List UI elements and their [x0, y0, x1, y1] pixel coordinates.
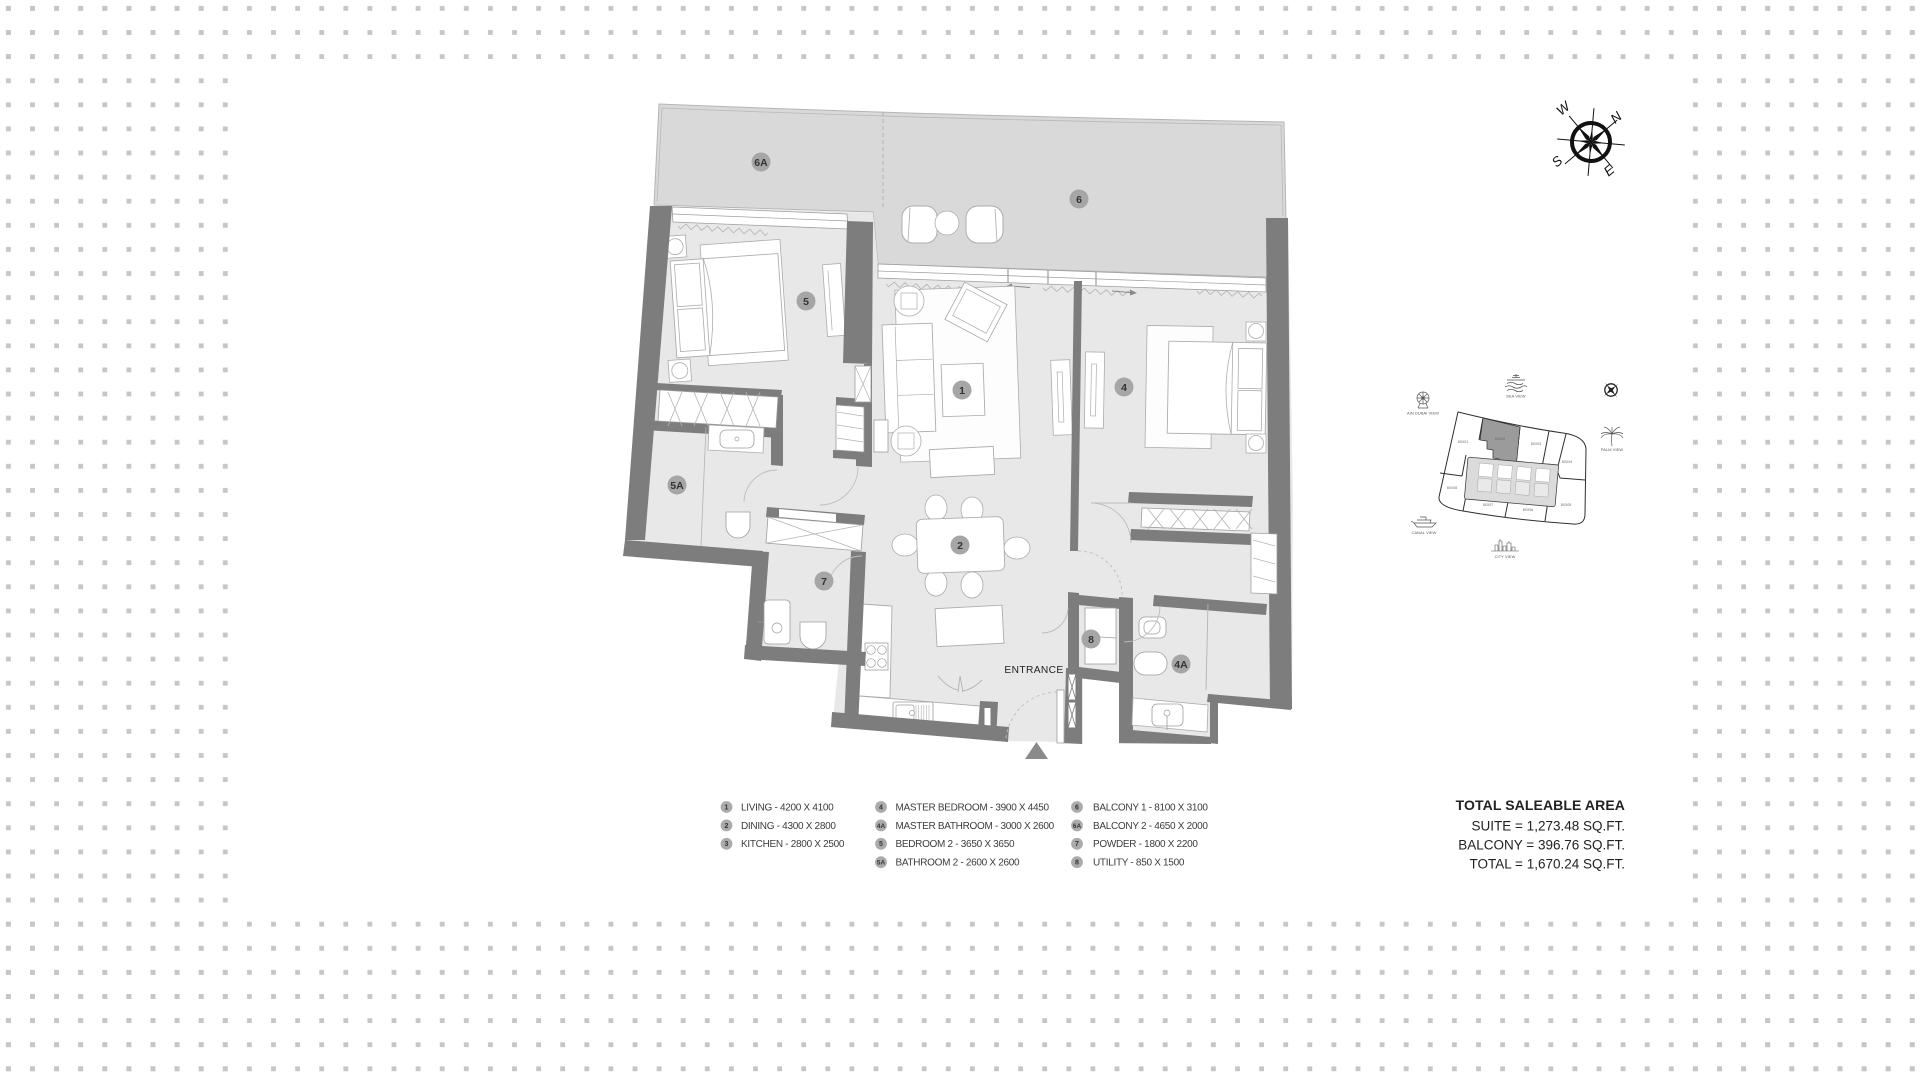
- svg-text:6: 6: [1076, 194, 1082, 206]
- svg-text:CANAL VIEW: CANAL VIEW: [1412, 530, 1437, 535]
- svg-text:PALM VIEW: PALM VIEW: [1601, 447, 1623, 452]
- svg-text:4: 4: [1121, 382, 1127, 394]
- svg-text:MASTER BATHROOM - 3000 X 2600: MASTER BATHROOM - 3000 X 2600: [896, 821, 1055, 832]
- svg-text:8: 8: [1075, 860, 1079, 867]
- svg-text:7: 7: [1075, 841, 1079, 848]
- svg-text:MASTER BEDROOM - 3900 X 4450: MASTER BEDROOM - 3900 X 4450: [896, 802, 1050, 813]
- svg-text:6: 6: [1075, 804, 1079, 811]
- svg-text:8XX02: 8XX02: [1495, 437, 1505, 441]
- svg-text:BEDROOM 2 - 3650 X 3650: BEDROOM 2 - 3650 X 3650: [896, 839, 1015, 850]
- svg-text:TOTAL = 1,670.24 SQ.FT.: TOTAL = 1,670.24 SQ.FT.: [1470, 857, 1625, 872]
- svg-text:LIVING - 4200 X 4100: LIVING - 4200 X 4100: [741, 802, 834, 813]
- svg-text:AIN DUBAI VIEW: AIN DUBAI VIEW: [1407, 411, 1439, 416]
- svg-text:8XX06: 8XX06: [1523, 508, 1533, 512]
- svg-text:5A: 5A: [877, 860, 886, 867]
- svg-text:6A: 6A: [754, 157, 768, 169]
- svg-text:POWDER - 1800 X 2200: POWDER - 1800 X 2200: [1093, 839, 1198, 850]
- svg-text:8XX08: 8XX08: [1447, 486, 1457, 490]
- svg-text:5: 5: [803, 296, 809, 308]
- svg-text:SUITE = 1,273.48 SQ.FT.: SUITE = 1,273.48 SQ.FT.: [1472, 819, 1625, 834]
- svg-text:4A: 4A: [877, 823, 886, 830]
- svg-text:UTILITY - 850 X 1500: UTILITY - 850 X 1500: [1093, 858, 1185, 869]
- svg-text:1: 1: [959, 385, 965, 397]
- svg-text:BATHROOM 2 - 2600 X 2600: BATHROOM 2 - 2600 X 2600: [896, 858, 1021, 869]
- svg-text:5A: 5A: [670, 480, 684, 492]
- svg-text:1: 1: [725, 804, 729, 811]
- svg-text:4A: 4A: [1174, 659, 1188, 671]
- svg-text:SEA VIEW: SEA VIEW: [1506, 394, 1526, 399]
- svg-text:8: 8: [1088, 634, 1094, 646]
- svg-text:8XX01: 8XX01: [1458, 440, 1468, 444]
- svg-text:7: 7: [821, 576, 827, 588]
- svg-text:5: 5: [879, 841, 883, 848]
- svg-text:BALCONY 2 - 4650 X 2000: BALCONY 2 - 4650 X 2000: [1093, 821, 1208, 832]
- svg-text:CITY VIEW: CITY VIEW: [1495, 554, 1516, 559]
- svg-text:DINING - 4300 X 2800: DINING - 4300 X 2800: [741, 821, 836, 832]
- svg-text:2: 2: [957, 540, 963, 552]
- svg-text:4: 4: [879, 804, 883, 811]
- svg-text:8XX07: 8XX07: [1483, 503, 1493, 507]
- svg-text:8XX03: 8XX03: [1531, 442, 1541, 446]
- svg-text:BALCONY = 396.76 SQ.FT.: BALCONY = 396.76 SQ.FT.: [1458, 838, 1625, 853]
- svg-text:BALCONY 1 - 8100 X 3100: BALCONY 1 - 8100 X 3100: [1093, 802, 1208, 813]
- svg-text:8XX05: 8XX05: [1561, 503, 1571, 507]
- svg-text:8XX04: 8XX04: [1562, 460, 1572, 464]
- svg-text:KITCHEN - 2800 X 2500: KITCHEN - 2800 X 2500: [741, 839, 845, 850]
- svg-text:TOTAL SALEABLE AREA: TOTAL SALEABLE AREA: [1456, 797, 1625, 813]
- svg-text:2: 2: [725, 823, 729, 830]
- svg-text:6A: 6A: [1073, 823, 1082, 830]
- svg-text:3: 3: [725, 841, 729, 848]
- svg-text:ENTRANCE: ENTRANCE: [1004, 665, 1063, 676]
